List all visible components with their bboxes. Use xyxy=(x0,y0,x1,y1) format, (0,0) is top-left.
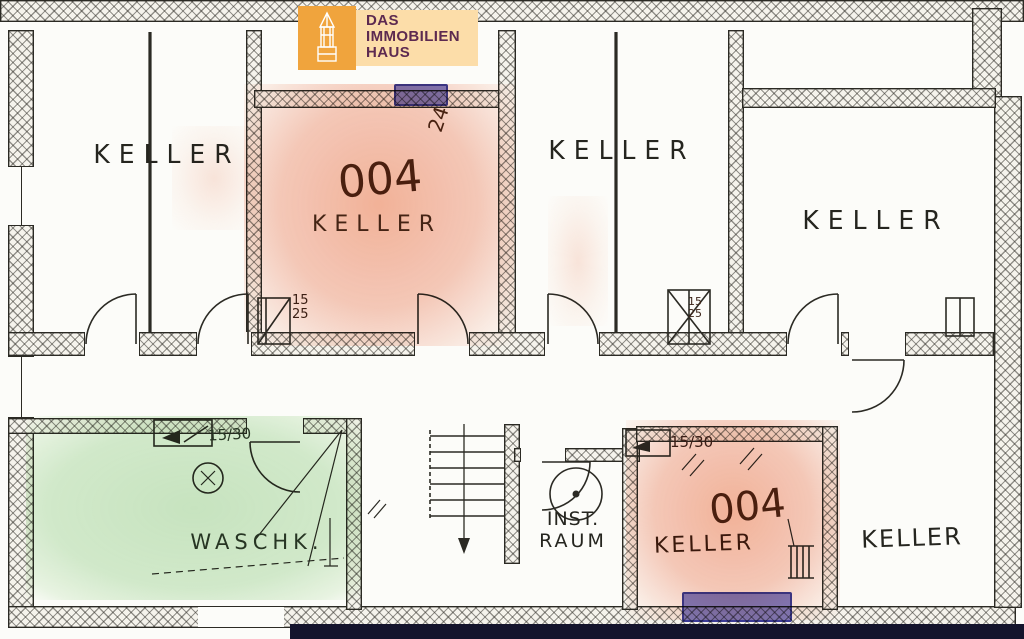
logo-line-1: DAS xyxy=(366,13,478,29)
window-symbol-waschk xyxy=(154,420,212,446)
agency-logo: DAS IMMOBILIEN HAUS xyxy=(298,6,478,70)
staircase xyxy=(430,424,504,554)
shaft-symbol-middle xyxy=(668,290,710,344)
floor-plan: KELLER KELLER KELLER 004 KELLER WASCHK. … xyxy=(0,0,1024,639)
radiator-symbol xyxy=(788,519,814,578)
boiler-symbol xyxy=(550,468,602,520)
window-symbol-unit-bottom xyxy=(626,430,670,456)
logo-wordmark: DAS IMMOBILIEN HAUS xyxy=(356,10,478,66)
floorplan-linework xyxy=(0,0,1024,639)
thin-partition-walls xyxy=(150,32,616,332)
shaft-symbol-right-keller xyxy=(946,298,974,336)
logo-line-3: HAUS xyxy=(366,45,478,61)
highlighted-window-top xyxy=(394,84,448,106)
hatch-ticks xyxy=(368,448,762,518)
waschk-fixtures xyxy=(152,430,344,574)
shaft-symbol-left xyxy=(258,298,290,344)
logo-tower-icon xyxy=(298,6,356,70)
logo-line-2: IMMOBILIEN xyxy=(366,29,478,45)
highlighted-window-bottom xyxy=(682,592,792,622)
